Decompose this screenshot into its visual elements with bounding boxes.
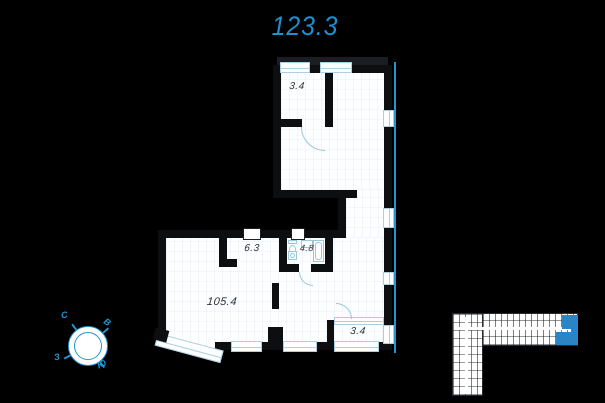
compass-label-west: З (53, 352, 61, 363)
room-label-top: 3.4 (276, 81, 317, 92)
partition-toproom-right (325, 73, 333, 127)
floor-plan-page: 123.3 (0, 0, 605, 403)
compass-label-east: В (102, 316, 113, 328)
partition-toproom-bottom (281, 119, 302, 127)
partition-loggia-left (327, 320, 334, 342)
compass-label-north: С (60, 309, 68, 320)
room-label-main: 105.4 (191, 296, 252, 308)
window-right-2 (383, 208, 394, 228)
compass-rose: С В Ю З (40, 300, 140, 390)
minimap-corridor-vertical (465, 317, 468, 394)
window-bottom-1 (231, 341, 262, 352)
room-label-bathroom: 4.8 (286, 243, 327, 253)
window-right-3 (383, 272, 394, 285)
vent-shaft-2 (291, 228, 305, 240)
partition-bath-bottom-right (311, 264, 325, 272)
partition-bath-bottom-left (279, 264, 299, 272)
partition-hall-bottom (219, 259, 237, 267)
section-accent-line (394, 62, 396, 353)
current-apartment-highlight-lower[interactable] (556, 332, 578, 345)
current-apartment-highlight-upper[interactable] (562, 315, 578, 329)
partition-stub-middle (272, 283, 279, 309)
window-top-2 (320, 62, 352, 73)
window-bottom-2 (283, 341, 317, 352)
pier-bottom-wall (268, 327, 283, 342)
wall-left-lower (158, 230, 166, 335)
compass-label-south: Ю (95, 357, 108, 370)
compass-inner-ring (74, 332, 102, 360)
window-top-1 (280, 62, 310, 73)
washer-drum-icon (290, 253, 295, 258)
window-right-1 (383, 110, 394, 127)
room-label-hall: 6.3 (231, 243, 272, 254)
building-minimap[interactable] (448, 310, 582, 400)
window-right-4 (383, 325, 394, 344)
window-bottom-3 (334, 341, 379, 352)
vent-shaft-1 (243, 228, 261, 240)
minimap-corridor-horizontal (454, 327, 576, 330)
room-label-loggia: 3.4 (337, 326, 378, 337)
